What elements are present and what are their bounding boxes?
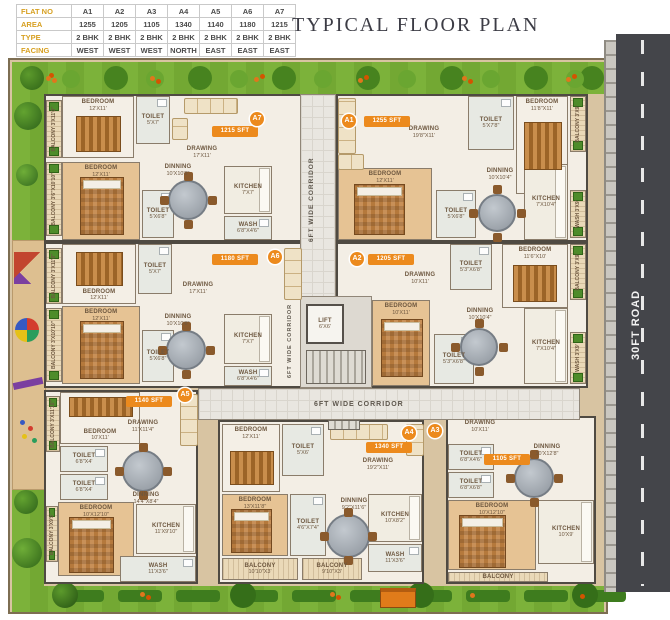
a4-dinning-label: DINNING9'2"X11'6" [326,498,382,511]
flat-type: 2 BHK [136,31,168,44]
room-dims-label: 10'X10'4" [468,315,491,321]
a7-kitchen: KITCHEN7'X7' [224,166,272,214]
a5-wash: WASH11'X3'6" [120,556,196,582]
room-dims-label: 5'X7'8" [483,123,500,129]
a6-bedroom-2: BEDROOM12'X11' [62,306,140,384]
a4-wash: WASH11'X3'6" [368,544,422,572]
a4-area-badge: 1340 SFT [366,442,412,453]
room-dims-label: 3'X11'0" [51,254,57,273]
room-dims-label: 17'X11' [193,153,211,159]
a5-drawing-label: DRAWING11'X11'4" [114,420,172,433]
dining-table [326,514,370,558]
flat-type: 2 BHK [232,31,264,44]
room-name-label: BALCONY [482,574,513,581]
page-title: TYPICAL FLOOR PLAN [292,14,540,37]
flat-no: A4 [168,5,200,18]
a1-balcony-1: BALCONY 3'X9' [570,96,586,152]
a1-drawing-label: DRAWING19'8"X11' [392,126,456,139]
a6-flat-marker: A6 [268,250,282,264]
flat-summary-table: FLAT NO A1A2A3A4A5A6A7 AREA 125512051105… [16,4,296,57]
sofa [184,98,238,114]
room-dims-label: 11'6"X10' [524,254,547,260]
room-dims-label: 5'3"X6'8" [443,359,465,365]
row-label: FACING [17,44,72,57]
bed [459,515,506,569]
wardrobe [69,397,133,417]
a3-toilet-2: TOILET6'8"X6'8" [448,472,494,498]
a3-kitchen: KITCHEN10'X9' [538,500,594,564]
flat-area: 1105 [136,18,168,31]
room-dims-label: 19'8"X11' [413,133,436,139]
a5-flat-marker: A5 [178,388,192,402]
a3-area-badge: 1105 SFT [484,454,530,465]
a1-bedroom-2: BEDROOM12'X11' [338,168,432,240]
a2-kitchen: KITCHEN7'X10'4" [524,308,568,384]
room-dims-label: 5'X6'8" [150,214,167,220]
room-dims-label: 10'X10'8" [166,321,189,327]
room-name-label: BALCONY [575,266,581,291]
a5-balcony-1: BALCONY 3'X11'10" [46,396,60,452]
dining-table [460,328,498,366]
bed [80,321,125,379]
entry-steps [328,420,360,430]
room-dims-label: 7'X7' [242,190,254,196]
room-name-label: BALCONY [575,118,581,143]
a4-balcony-1: BALCONY10'10"X3' [222,558,298,580]
room-dims-label: 10'X11' [392,310,410,316]
tree [14,490,38,514]
room-dims-label: 12'X11' [92,172,110,178]
row-label: FLAT NO [17,5,72,18]
room-name-label: BALCONY [50,423,56,448]
room-dims-label: 11'8"X11' [531,106,553,112]
a7-toilet-1: TOILET5'X7' [136,96,170,144]
a1-dinning-label: DINNING10'X10'4" [472,168,528,181]
room-dims-label: 14'4"X8'4" [134,499,159,505]
room-dims-label: 5'X7' [147,120,159,126]
wardrobe [76,252,123,286]
horizontal-corridor-label: 6FT WIDE CORRIDOR [314,401,404,408]
table-row: TYPE 2 BHK2 BHK2 BHK2 BHK2 BHK2 BHK2 BHK [17,31,296,44]
a3-drawing-label: DRAWING10'X11' [450,420,510,433]
row-label: AREA [17,18,72,31]
room-dims-label: 3'X9'5" [49,513,55,529]
a7-bedroom-2: BEDROOM12'X11' [62,162,140,240]
flat-area: 1140 [200,18,232,31]
room-dims-label: 3'X9' [575,253,581,264]
room-dims-label: 6'8"X4'6" [460,457,482,463]
flat-no: A2 [104,5,136,18]
a6-dinning-label: DINNING10'X10'8" [150,314,206,327]
a2-drawing-label: DRAWING10'X11' [390,272,450,285]
flower-cluster [140,592,145,597]
flat-type: 2 BHK [264,31,296,44]
staircase [306,350,366,384]
room-dims-label: 3'X11'0" [51,107,57,126]
room-dims-label: 11'X11'4" [132,427,154,433]
bed [231,509,273,553]
sofa [338,154,364,170]
room-dims-label: 5'X6'8" [448,214,465,220]
wardrobe [524,122,562,170]
a2-bedroom-1: BEDROOM11'6"X10' [502,244,568,308]
a3-flat-marker: A3 [428,424,442,438]
flat-facing: WEST [72,44,104,57]
a4-flat-marker: A4 [402,426,416,440]
flower-cluster [46,76,51,81]
room-dims-label: 10'X10'4" [488,175,511,181]
a5-toilet-2: TOILET6'8"X4' [60,474,108,500]
flat-facing: WEST [104,44,136,57]
a6-balcony-1: BALCONY 3'X11'0" [46,248,62,304]
lift-dims-label: 6'X6' [319,324,331,330]
a2-area-badge: 1205 SFT [368,254,414,265]
room-dims-label: 10'X8'2" [385,518,405,524]
room-dims-label: 3'X10'10" [51,321,57,343]
wardrobe [76,116,121,152]
room-dims-label: 12'X11' [92,316,110,322]
a4-toilet-1: TOILET5'X6' [282,424,324,476]
bush-row-small [62,70,80,88]
room-dims-label: 3'X9' [575,200,581,211]
room-dims-label: 6'8"X4' [76,487,93,493]
flat-no: A6 [232,5,264,18]
flat-area: 1215 [264,18,296,31]
table-row: FACING WESTWESTWESTNORTHEASTEASTEAST [17,44,296,57]
flat-no: A1 [72,5,104,18]
room-dims-label: 9'2"X11'6" [342,505,367,511]
room-dims-label: 3'X9' [575,344,581,355]
armchair [172,118,188,140]
flat-facing: NORTH [168,44,200,57]
room-name-label: WASH [575,357,581,372]
a2-dinning-label: DINNING10'X10'4" [452,308,508,321]
flat-type: 2 BHK [104,31,136,44]
room-dims-label: 3'6"X10'10" [51,172,57,199]
a7-flat-marker: A7 [250,112,264,126]
flat-no: A5 [200,5,232,18]
tree [14,102,42,130]
vertical-corridor-label: 6FT WIDE CORRIDOR [308,140,328,260]
room-dims-label: 5'3"X6'8" [460,267,482,273]
flat-area: 1255 [72,18,104,31]
a5-balcony-2: BALCONY 3'X9'5" [46,506,58,562]
a7-wash: WASH6'8"X4'6" [224,216,272,240]
a3-bedroom-1: BEDROOM10'X12'10" [448,500,536,570]
vertical-corridor-label: 6FT WIDE CORRIDOR [287,296,301,386]
room-dims-label: 9'10"X3' [322,569,342,575]
flat-area: 1340 [168,18,200,31]
room-dims-label: 6'8"X4' [76,459,93,465]
road-label: 30FT ROAD [630,260,656,390]
room-name-label: BALCONY [49,531,55,556]
wardrobe [513,265,557,302]
a4-balcony-2: BALCONY9'10"X3' [302,558,362,580]
room-dims-label: 10'X12'10" [479,510,505,516]
lawn-top [12,62,604,94]
a7-balcony-1: BALCONY 3'X11'0" [46,100,62,158]
flat-type: 2 BHK [72,31,104,44]
a1-kitchen: KITCHEN7'X10'4" [524,164,568,240]
room-name-label: BALCONY [51,274,57,299]
a6-balcony-2: BALCONY 3'X10'10" [46,308,62,382]
merry-go-round [15,318,39,342]
a6-area-badge: 1180 SFT [212,254,258,265]
a7-balcony-2: BALCONY 3'6"X10'10" [46,162,62,236]
entrance-gate [380,588,416,608]
a1-flat-marker: A1 [342,114,356,128]
flat-facing: EAST [200,44,232,57]
room-dims-label: 17'X11' [189,289,207,295]
room-dims-label: 12'X11' [89,106,107,112]
room-name-label: BALCONY [51,344,57,369]
room-dims-label: 11'X9'10" [155,529,178,535]
room-dims-label: 10'X12'8" [535,451,558,457]
dining-table [122,450,164,492]
room-dims-label: 7'X10'4" [536,202,556,208]
a5-dinning-label: DINNING14'4"X8'4" [118,492,174,505]
table-row: AREA 1255120511051340114011801215 [17,18,296,31]
a7-drawing-label: DRAWING17'X11' [172,146,232,159]
a6-toilet-1: TOILET5'X7' [138,244,172,294]
a1-toilet-2: TOILET5'X6'8" [436,190,476,238]
bed [80,177,125,235]
dining-table [478,194,516,232]
room-dims-label: 12'X11' [242,434,260,440]
table-row: FLAT NO A1A2A3A4A5A6A7 [17,5,296,18]
lift: LIFT6'X6' [306,304,344,344]
room-dims-label: 10'X9' [559,532,574,538]
a4-toilet-2: TOILET4'6"X7'4" [290,494,326,556]
a4-bedroom-2: BEDROOM13'X11'8" [222,494,288,556]
dining-table [166,330,206,370]
a6-bedroom-1: BEDROOM12'X11' [62,244,136,304]
a2-toilet-1: TOILET5'3"X6'8" [450,244,492,290]
sofa [284,248,302,300]
room-dims-label: 19'2"X11' [367,465,390,471]
room-dims-label: 10'X11' [471,427,489,433]
palm-tree [52,582,78,608]
a7-area-badge: 1215 SFT [212,126,258,137]
room-dims-label: 10'X12'10" [83,512,109,518]
floor-plan-page: FLAT NO A1A2A3A4A5A6A7 AREA 125512051105… [0,0,670,620]
flat-facing: EAST [264,44,296,57]
room-name-label: BALCONY [51,201,57,226]
flat-facing: EAST [232,44,264,57]
bed [354,184,406,235]
a6-kitchen: KITCHEN7'X7' [224,314,272,364]
a7-dinning-label: DINNING10'X10'8" [150,164,206,177]
toy-dots [20,420,25,425]
a1-wash: WASH 3'X9' [570,190,586,238]
a2-bedroom-2: BEDROOM10'X11' [372,300,430,386]
room-dims-label: 6'8"X4'6" [237,376,259,382]
room-dims-label: 4'6"X7'4" [297,525,319,531]
bed [381,319,423,376]
a4-bedroom-1: BEDROOM12'X11' [222,424,280,492]
room-dims-label: 11'X3'6" [385,558,405,564]
a1-toilet-1: TOILET5'X7'8" [468,96,514,150]
row-label: TYPE [17,31,72,44]
a5-kitchen: KITCHEN11'X9'10" [136,504,196,554]
bed [69,517,114,572]
a7-bedroom-1: BEDROOM12'X11' [62,96,134,158]
slide [14,252,40,284]
room-dims-label: 5'X7' [149,269,161,275]
room-dims-label: 10'X10'8" [166,171,189,177]
room-dims-label: 10'X11' [411,279,429,285]
flat-type: 2 BHK [168,31,200,44]
a5-toilet-1: TOILET6'8"X4' [60,446,108,472]
bush-row [20,66,44,90]
flat-area: 1205 [104,18,136,31]
tree [16,164,38,186]
a2-wash: WASH 3'X9' [570,332,586,384]
a6-wash: WASH6'8"X4'6" [224,366,272,386]
flat-no: A3 [136,5,168,18]
room-dims-label: 11'X3'6" [148,569,168,575]
room-dims-label: 10'X11' [91,435,109,441]
flat-facing: WEST [136,44,168,57]
flat-type: 2 BHK [200,31,232,44]
room-dims-label: 6'8"X4'6" [237,228,259,234]
a4-drawing-label: DRAWING19'2"X11' [346,458,410,471]
room-dims-label: 6'8"X6'8" [460,485,482,491]
room-dims-label: 12'X11' [90,295,108,301]
flat-no: A7 [264,5,296,18]
room-dims-label: 13'X11'8" [244,504,267,510]
a2-balcony-1: BALCONY 3'X9' [570,244,586,300]
kerb [604,40,616,592]
dining-table [168,180,208,220]
a5-area-badge: 1140 SFT [126,396,172,407]
room-dims-label: 3'X9' [575,105,581,116]
room-dims-label: 12'X11' [376,178,394,184]
flat-area: 1180 [232,18,264,31]
a6-drawing-label: DRAWING17'X11' [168,282,228,295]
room-name-label: BALCONY [51,127,57,152]
room-dims-label: 10'10"X3' [248,569,271,575]
room-name-label: WASH [575,213,581,228]
a1-area-badge: 1255 SFT [364,116,410,127]
room-dims-label: 7'X10'4" [536,346,556,352]
room-dims-label: 5'X6'8" [150,356,167,362]
room-dims-label: 3'X11'10" [50,400,56,422]
tree [12,538,42,568]
room-dims-label: 7'X7' [242,339,254,345]
wardrobe [230,451,275,485]
a3-balcony-1: BALCONY [448,572,548,582]
a2-flat-marker: A2 [350,252,364,266]
room-dims-label: 5'X6' [297,450,309,456]
